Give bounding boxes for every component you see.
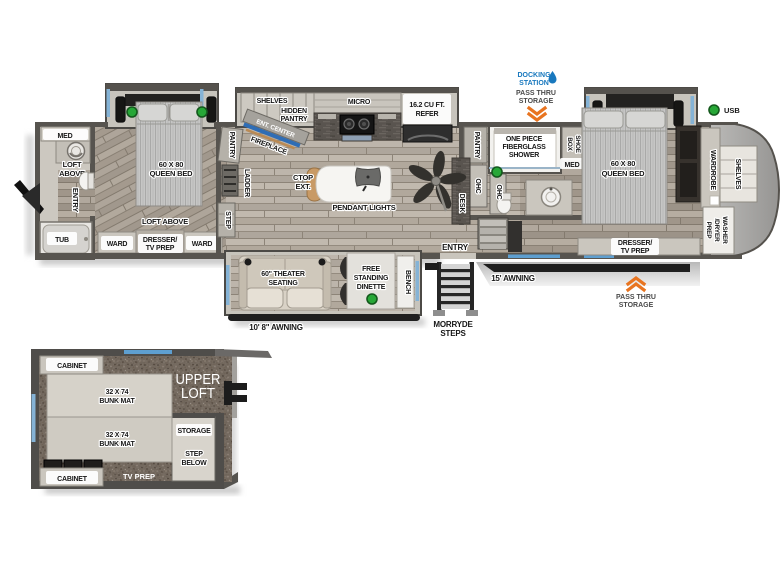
- svg-text:BENCH: BENCH: [404, 270, 411, 294]
- svg-text:STORAGE: STORAGE: [519, 98, 554, 105]
- svg-text:TUB: TUB: [55, 237, 69, 244]
- svg-text:SHELVES: SHELVES: [734, 159, 741, 190]
- svg-text:FIBERGLASS: FIBERGLASS: [502, 144, 546, 151]
- svg-text:ENTRY: ENTRY: [71, 188, 80, 212]
- svg-text:PANTRY: PANTRY: [473, 132, 480, 159]
- svg-text:DINETTE: DINETTE: [357, 284, 386, 291]
- svg-text:MED: MED: [565, 162, 580, 169]
- svg-text:/DRYER: /DRYER: [713, 218, 720, 242]
- svg-text:60 X 80: 60 X 80: [159, 160, 183, 169]
- svg-text:LOFT ABOVE: LOFT ABOVE: [142, 217, 188, 226]
- svg-text:BELOW: BELOW: [181, 460, 207, 467]
- svg-text:FREE: FREE: [362, 266, 380, 273]
- svg-text:MICRO: MICRO: [348, 99, 371, 106]
- svg-text:WASHER: WASHER: [721, 216, 728, 244]
- svg-text:16.2 CU FT.: 16.2 CU FT.: [409, 102, 444, 109]
- svg-text:STATION: STATION: [519, 80, 549, 87]
- svg-text:PASS THRU: PASS THRU: [516, 90, 556, 97]
- svg-text:LOFT: LOFT: [63, 160, 82, 169]
- svg-text:STORAGE: STORAGE: [619, 302, 654, 309]
- svg-text:DOCKING: DOCKING: [517, 72, 551, 79]
- svg-text:OHC: OHC: [495, 185, 502, 200]
- svg-text:PREP: PREP: [705, 222, 712, 240]
- svg-text:STANDING: STANDING: [354, 275, 389, 282]
- svg-text:MORRYDE: MORRYDE: [433, 320, 473, 329]
- svg-text:SHELVES: SHELVES: [257, 98, 288, 105]
- svg-text:BUNK MAT: BUNK MAT: [99, 398, 135, 405]
- svg-text:OHC: OHC: [474, 179, 481, 194]
- svg-text:SHOWER: SHOWER: [509, 152, 539, 159]
- svg-text:TV PREP: TV PREP: [146, 245, 175, 252]
- svg-text:LOFT: LOFT: [181, 385, 215, 402]
- svg-text:DRESSER/: DRESSER/: [618, 240, 652, 247]
- svg-text:CTOP: CTOP: [293, 173, 313, 182]
- svg-text:60" THEATER: 60" THEATER: [261, 271, 305, 278]
- svg-text:EXT.: EXT.: [295, 182, 310, 191]
- svg-text:TV PREP: TV PREP: [123, 472, 155, 481]
- svg-text:HIDDEN: HIDDEN: [281, 108, 307, 115]
- svg-text:DRESSER/: DRESSER/: [143, 237, 177, 244]
- svg-text:MED: MED: [58, 133, 73, 140]
- svg-text:PANTRY: PANTRY: [228, 132, 235, 159]
- svg-text:PANTRY: PANTRY: [281, 116, 308, 123]
- svg-text:60 X 80: 60 X 80: [611, 159, 635, 168]
- svg-text:STEPS: STEPS: [440, 329, 466, 338]
- svg-text:USB: USB: [724, 106, 740, 115]
- svg-text:SEATING: SEATING: [268, 280, 298, 287]
- svg-text:PENDANT LIGHTS: PENDANT LIGHTS: [332, 203, 395, 212]
- svg-text:SHOE: SHOE: [574, 135, 581, 153]
- svg-text:STEP: STEP: [185, 451, 203, 458]
- svg-text:WARD: WARD: [107, 241, 128, 248]
- svg-text:WARD: WARD: [192, 241, 213, 248]
- svg-text:CABINET: CABINET: [57, 363, 88, 370]
- svg-text:WARDROBE: WARDROBE: [709, 150, 716, 191]
- svg-text:32 X 74: 32 X 74: [106, 432, 129, 439]
- svg-text:QUEEN BED: QUEEN BED: [602, 169, 646, 178]
- svg-text:32 X 74: 32 X 74: [106, 389, 129, 396]
- svg-text:TV PREP: TV PREP: [621, 248, 650, 255]
- svg-text:ENTRY: ENTRY: [442, 243, 469, 252]
- svg-text:STORAGE: STORAGE: [177, 428, 211, 435]
- svg-text:QUEEN BED: QUEEN BED: [150, 169, 194, 178]
- svg-text:BUNK MAT: BUNK MAT: [99, 441, 135, 448]
- svg-text:BOX: BOX: [566, 137, 573, 151]
- svg-text:PASS THRU: PASS THRU: [616, 294, 656, 301]
- svg-text:STEP: STEP: [224, 211, 231, 229]
- svg-text:ONE PIECE: ONE PIECE: [506, 136, 543, 143]
- svg-text:10' 8" AWNING: 10' 8" AWNING: [249, 323, 302, 332]
- svg-text:REFER: REFER: [416, 111, 439, 118]
- svg-text:CABINET: CABINET: [57, 476, 88, 483]
- svg-text:LADDER: LADDER: [243, 169, 250, 197]
- svg-text:15' AWNING: 15' AWNING: [491, 274, 535, 283]
- svg-text:DESK: DESK: [458, 194, 465, 213]
